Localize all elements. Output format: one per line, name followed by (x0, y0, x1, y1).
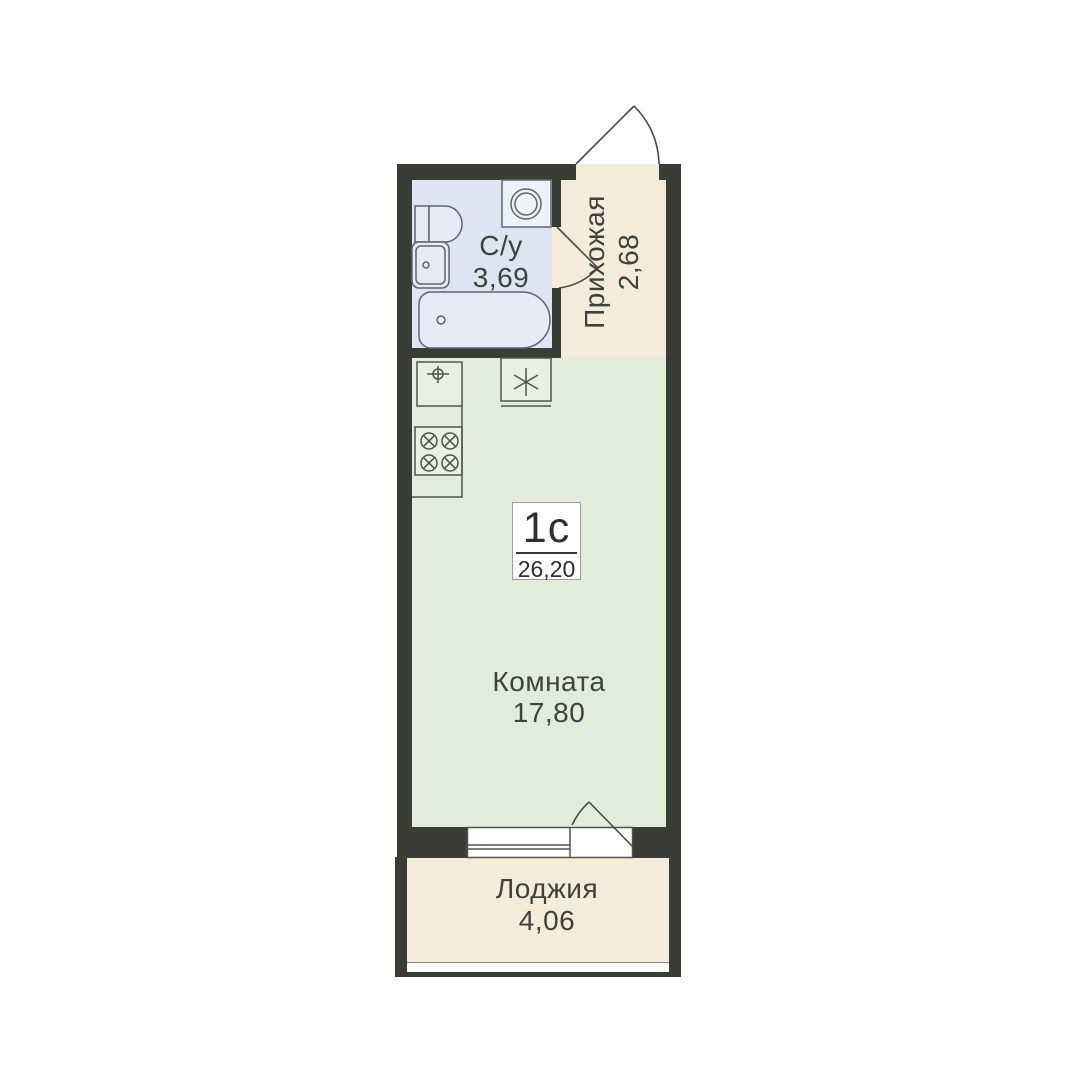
room-label: Комната 17,80 (492, 666, 605, 728)
loggia-area: 4,06 (496, 905, 598, 937)
bathroom-label: С/у 3,69 (473, 230, 530, 294)
window-icon (468, 828, 633, 858)
stove-icon (415, 427, 462, 475)
apartment-type-badge: 1с 26,20 (512, 502, 581, 580)
apartment-total-area: 26,20 (513, 557, 580, 581)
bathroom-sink-icon (412, 242, 449, 288)
bathroom-area: 3,69 (473, 262, 530, 294)
washing-machine-icon (502, 180, 551, 227)
apartment-type: 1с (513, 506, 580, 550)
entry-door-icon (576, 106, 659, 164)
loggia-name: Лоджия (496, 873, 598, 905)
floor-plan: С/у 3,69 Прихожая 2,68 Комната 17,80 Лод… (0, 0, 1080, 1080)
kitchen-sink-icon (417, 362, 462, 406)
bathroom-name: С/у (473, 230, 530, 262)
bathtub-icon (419, 292, 550, 348)
hallway-name: Прихожая (578, 195, 612, 329)
hallway-area: 2,68 (612, 195, 646, 329)
hallway-label: Прихожая 2,68 (578, 195, 646, 329)
balcony-door-icon (572, 802, 634, 848)
room-name: Комната (492, 666, 605, 697)
room-area: 17,80 (492, 697, 605, 728)
toilet-icon (415, 206, 462, 242)
appliance-asterisk-icon (501, 358, 551, 406)
badge-divider (516, 552, 577, 554)
loggia-label: Лоджия 4,06 (496, 873, 598, 937)
